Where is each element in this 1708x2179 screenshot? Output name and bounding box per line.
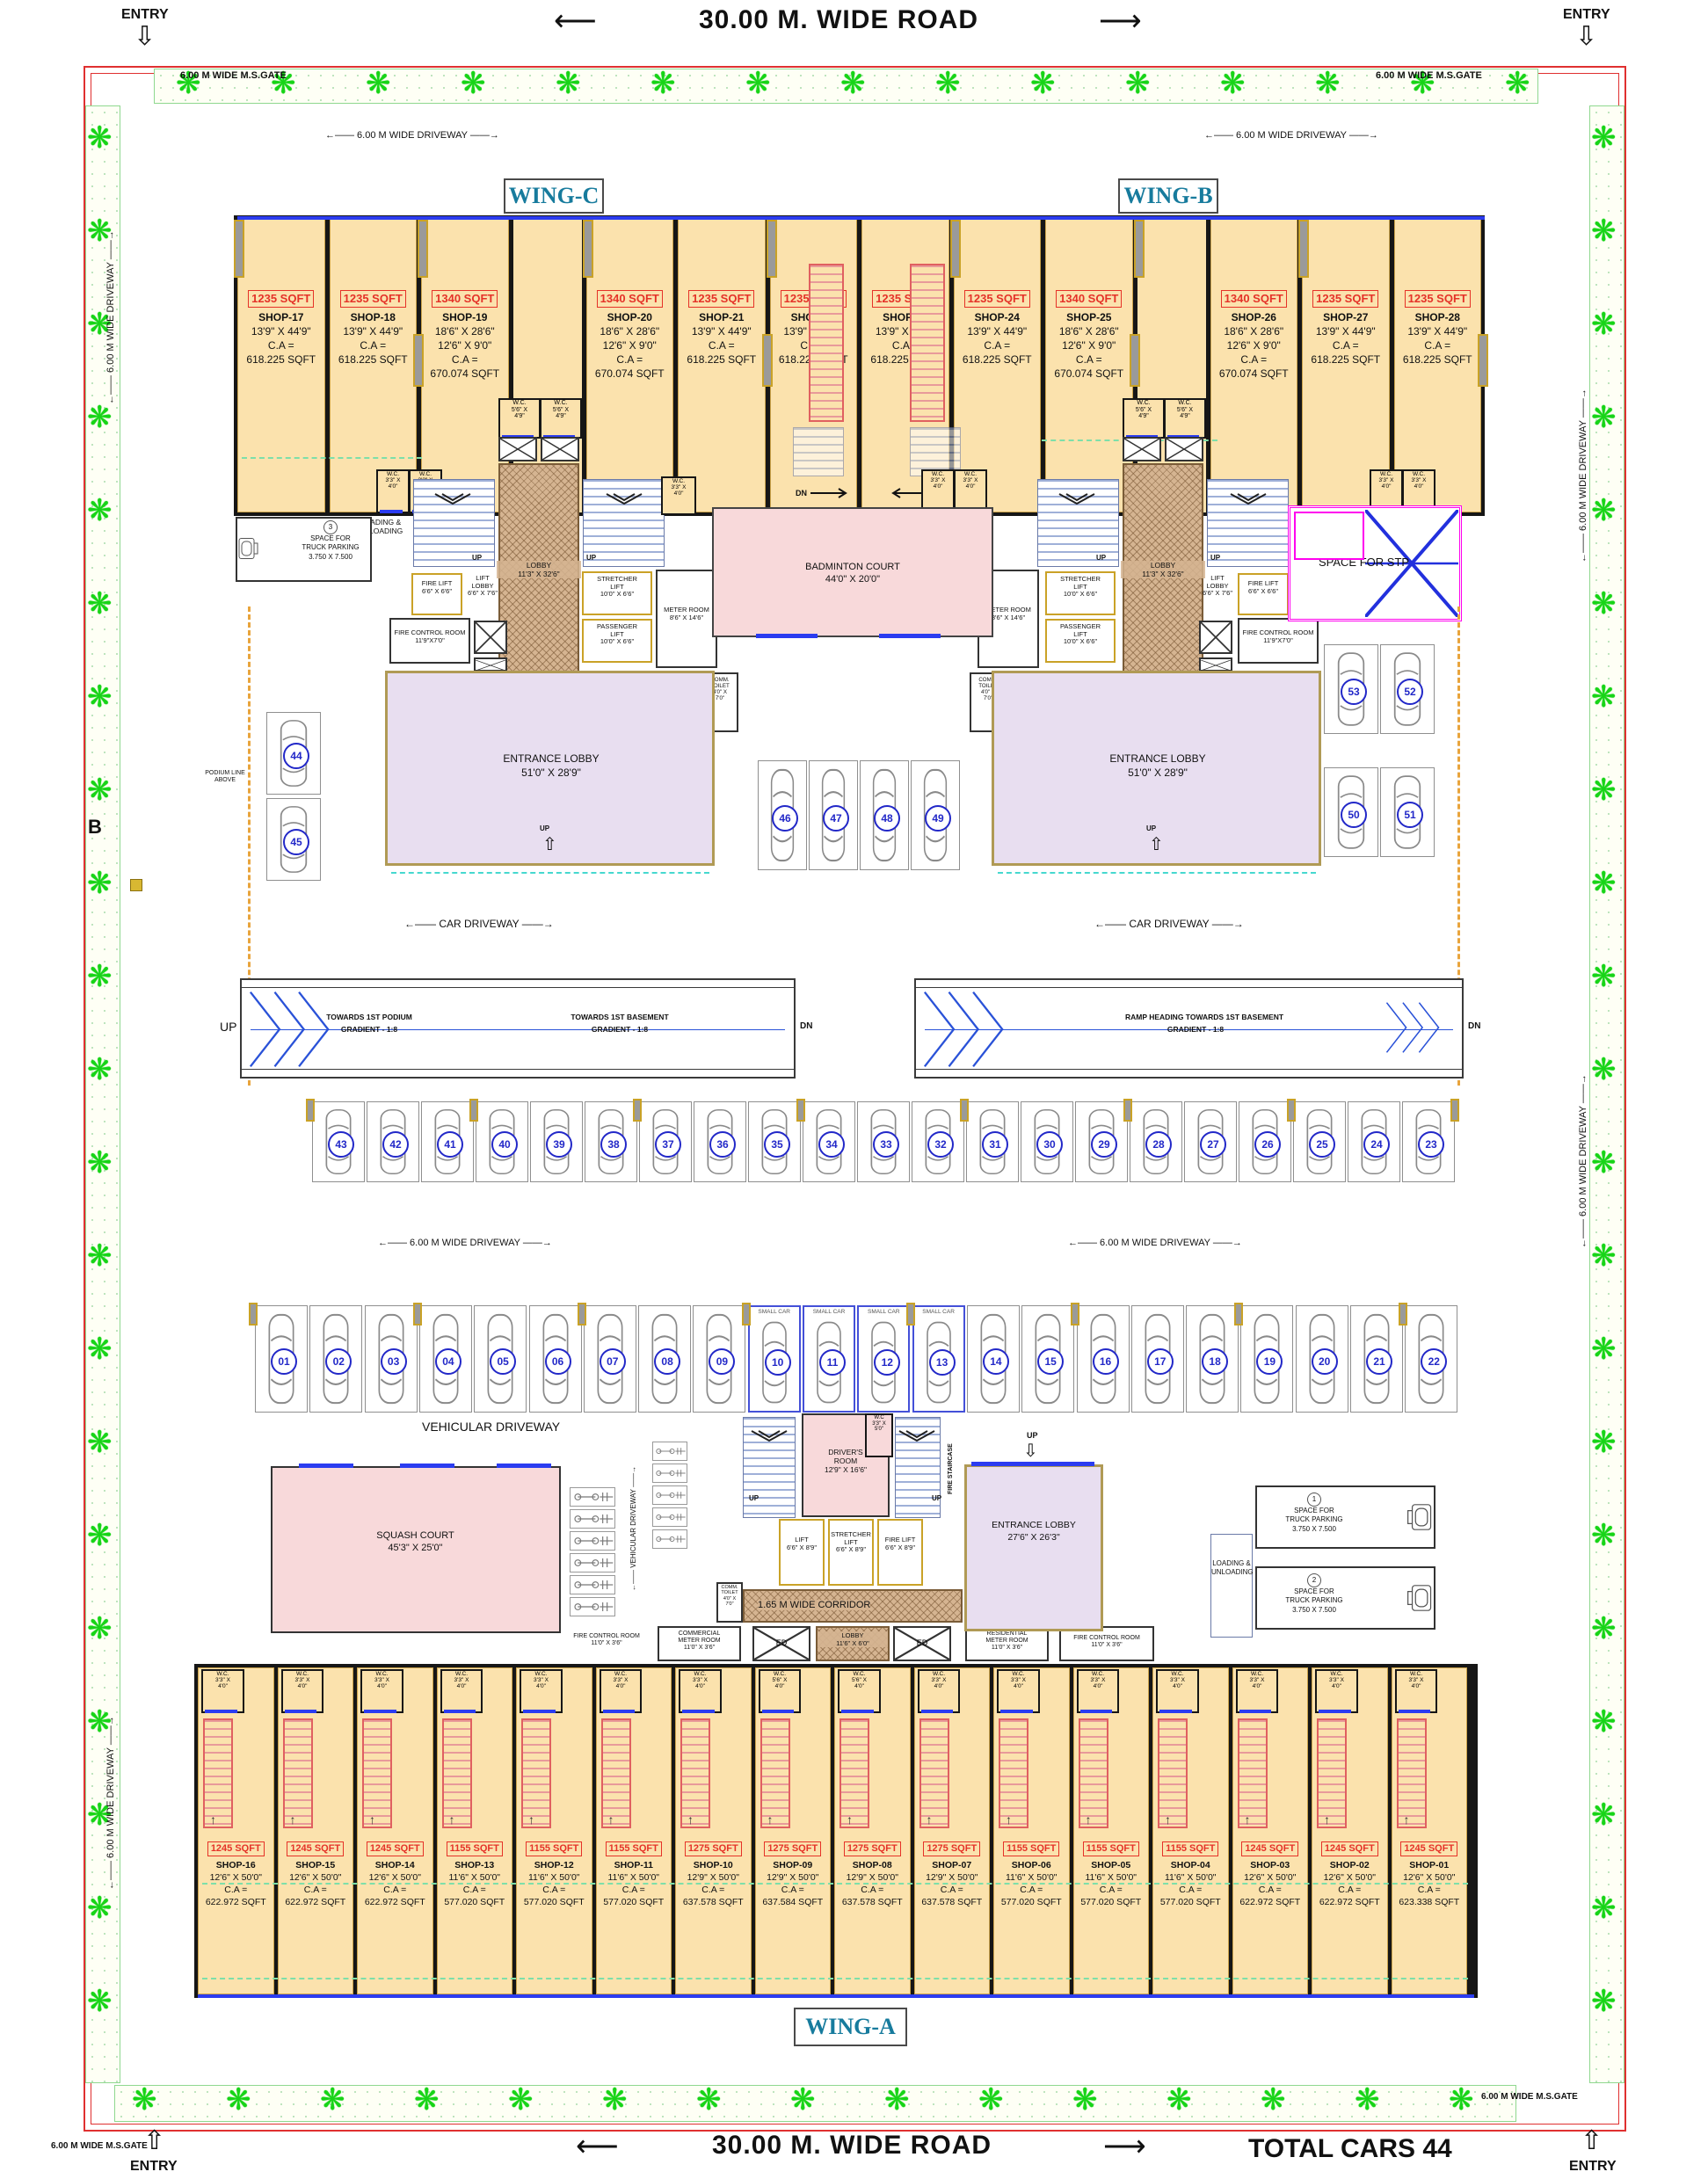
wc-label-line: 4'9" <box>1166 413 1204 420</box>
tree-icon: ❋ <box>1167 2085 1192 2115</box>
squash-court-label-line: 45'3" X 25'0" <box>343 1542 488 1554</box>
up-arrow-icon: ↑ <box>1006 1812 1012 1827</box>
tree-icon: ❋ <box>1030 69 1056 98</box>
shop-ca-value: 577.020 SQFT <box>1072 1896 1152 1908</box>
parking-stall: 35 <box>748 1101 801 1182</box>
parking-stall: 22 <box>1405 1305 1457 1413</box>
shop-ca-value: 618.225 SQFT <box>237 352 325 367</box>
up-arrow-icon: ↑ <box>608 1812 614 1827</box>
tree-icon: ❋ <box>132 2085 157 2115</box>
shop-info: 1340 SQFTSHOP-1918'6" X 28'6"12'6" X 9'0… <box>421 290 509 381</box>
loading-unloading-label-line: UNLOADING <box>1211 1568 1252 1577</box>
wc-label-line: 3'3" X <box>1371 477 1401 483</box>
entry-label-bottom-left: ENTRY <box>130 2159 178 2175</box>
shop-ca: C.A = <box>1310 1884 1390 1896</box>
shop-ca-value: 618.225 SQFT <box>678 352 766 367</box>
lift-lobby-label: LIFTLOBBY6'6" X 7'6" <box>1199 575 1236 598</box>
parking-stall: 31 <box>966 1101 1019 1182</box>
shop-info: 1245 SQFTSHOP-0312'6" X 50'0"C.A =622.97… <box>1231 1841 1311 1909</box>
parking-stall: 29 <box>1075 1101 1128 1182</box>
shop-area-badge: 1340 SQFT <box>432 290 498 308</box>
parking-stall: 17 <box>1131 1305 1184 1413</box>
wc-door-window <box>444 1710 476 1713</box>
tree-icon: ❋ <box>87 1334 113 1364</box>
up-arrow-icon: ↑ <box>449 1812 455 1827</box>
shop-dims: 18'6" X 28'6" <box>586 324 674 338</box>
wc-room: W.C.3'3" X4'0" <box>201 1669 244 1713</box>
wc-door-window <box>1239 1710 1272 1713</box>
up-arrow-icon: ↑ <box>927 1812 933 1827</box>
column-marker <box>1134 220 1145 278</box>
shop-info: 1340 SQFTSHOP-2518'6" X 28'6"12'6" X 9'0… <box>1045 290 1133 381</box>
parking-number: 17 <box>1147 1348 1174 1375</box>
wc-room: W.C.5'6" X4'9" <box>498 398 541 439</box>
corridor-label: 1.65 M WIDE CORRIDOR <box>758 1600 870 1610</box>
ramp-label: TOWARDS 1ST BASEMENT <box>563 1013 677 1021</box>
parking-stall: 04 <box>419 1305 472 1413</box>
shop-ca: C.A = <box>594 1884 674 1896</box>
column-marker <box>1399 1303 1407 1326</box>
shop-dims: 13'9" X 44'9" <box>1302 324 1390 338</box>
stair-block-red <box>839 1718 869 1828</box>
parking-number: 46 <box>772 805 798 832</box>
truck-parking-line: 3.750 X 7.500 <box>1266 1525 1363 1534</box>
tree-icon: ❋ <box>1591 1427 1617 1457</box>
parking-number: 11 <box>819 1349 846 1376</box>
residential-meter-room-label: RESIDENTIALMETER ROOM11'0" X 3'6" <box>967 1631 1047 1652</box>
parking-number: 08 <box>654 1348 680 1375</box>
shop-area-badge: 1235 SQFT <box>1405 290 1471 308</box>
column-marker <box>1234 1303 1243 1326</box>
shop-name: SHOP-11 <box>594 1859 674 1871</box>
shop-info: 1155 SQFTSHOP-0611'6" X 50'0"C.A =577.02… <box>992 1841 1072 1909</box>
b-marker: B <box>88 816 102 839</box>
up-arrow-icon: ↑ <box>767 1812 774 1827</box>
shop-info: 1275 SQFTSHOP-0712'9" X 50'0"C.A =637.57… <box>912 1841 992 1909</box>
lift-shaft <box>1199 621 1232 654</box>
stair-block-red <box>1079 1718 1108 1828</box>
parking-stall: 24 <box>1348 1101 1400 1182</box>
residential-meter-room-label-line: METER ROOM <box>967 1638 1047 1645</box>
stair-block-red <box>362 1718 392 1828</box>
column-marker <box>413 1303 422 1326</box>
tree-icon: ❋ <box>1591 682 1617 712</box>
wc-room: W.C.3'3" X4'0" <box>918 1669 961 1713</box>
tree-icon: ❋ <box>1591 1241 1617 1271</box>
tree-icon: ❋ <box>1591 309 1617 339</box>
tree-icon: ❋ <box>790 2085 816 2115</box>
truck-parking-line: SPACE FOR <box>1266 1507 1363 1515</box>
lift-lobby-label: LIFTLOBBY6'6" X 7'6" <box>464 575 501 598</box>
wc-label-line: W.C. <box>1124 400 1163 407</box>
shop-dims: 13'9" X 44'9" <box>1394 324 1482 338</box>
parking-stall-small-car: SMALL CAR11 <box>803 1305 855 1413</box>
parking-stall: 36 <box>694 1101 746 1182</box>
passenger-lift-label: PASSENGERLIFT10'0" X 6'6" <box>1047 623 1114 646</box>
wc-label-line: 3'3" X <box>1397 1677 1436 1683</box>
shop-info: 1235 SQFTSHOP-1713'9" X 44'9"C.A =618.22… <box>237 290 325 367</box>
shop-info: 1155 SQFTSHOP-1311'6" X 50'0"C.A =577.02… <box>435 1841 515 1909</box>
tree-icon: ❋ <box>87 1614 113 1644</box>
parking-number: 24 <box>1363 1131 1390 1158</box>
truck-parking-line: TRUCK PARKING <box>1266 1596 1363 1605</box>
parking-stall: 34 <box>803 1101 855 1182</box>
wc-room: W.C.3'3" X4'0" <box>1156 1669 1199 1713</box>
parking-stall: 51 <box>1380 767 1435 857</box>
podium-line-label-line: PODIUM LINE <box>198 770 252 777</box>
shop-ca-value: 577.020 SQFT <box>1151 1896 1231 1908</box>
wc-label-line: 4'0" <box>760 1683 800 1689</box>
wc-door-window <box>1319 1710 1351 1713</box>
entrance-lobby-label: ENTRANCE LOBBY51'0" X 28'9" <box>1079 752 1237 780</box>
road-arrow-left-bottom: ⟵ <box>576 2129 619 2164</box>
tree-icon: ❋ <box>87 1241 113 1271</box>
column-marker <box>742 1303 751 1326</box>
tree-icon: ❋ <box>1355 2085 1380 2115</box>
shop-area-badge: 1245 SQFT <box>1400 1841 1457 1856</box>
car-driveway-label: ←—— CAR DRIVEWAY ——→ <box>404 918 554 930</box>
column-marker <box>413 334 424 387</box>
wc-label-line: 4'0" <box>1079 1683 1118 1689</box>
tree-icon: ❋ <box>87 1893 113 1923</box>
fire-lift-label-line: 6'6" X 6'6" <box>1239 588 1287 596</box>
tree-icon: ❋ <box>1591 868 1617 898</box>
shop-dims: 18'6" X 28'6" <box>1210 324 1298 338</box>
wc-label-line: W.C. <box>1371 471 1401 477</box>
road-label-bottom: 30.00 M. WIDE ROAD <box>712 2131 992 2161</box>
bottom-band-window-strip <box>198 1994 1474 1998</box>
lobby-label: LOBBY11'3" X 32'6" <box>497 561 581 578</box>
truck-number: 1 <box>1307 1493 1321 1507</box>
shop-name: SHOP-14 <box>355 1859 435 1871</box>
wc-label-line: 3'3" X <box>680 1677 720 1683</box>
up-label: UP <box>586 554 596 562</box>
shop-dims: 18'6" X 28'6" <box>421 324 509 338</box>
ramp-chevron-icon <box>1385 987 1455 1068</box>
tree-icon: ❋ <box>320 2085 345 2115</box>
tree-icon: ❋ <box>650 69 676 98</box>
truck-parking-line: 3.750 X 7.500 <box>290 553 371 562</box>
parking-number: 07 <box>600 1348 626 1375</box>
shop-area-badge: 1155 SQFT <box>1162 1841 1218 1856</box>
arrow-right-icon <box>809 487 849 499</box>
wc-door-window <box>1000 1710 1033 1713</box>
parking-stall: 27 <box>1184 1101 1237 1182</box>
shop-unit <box>1312 1667 1388 1994</box>
shop-name: SHOP-25 <box>1045 310 1133 324</box>
shop-unit <box>1073 1667 1150 1994</box>
parking-stall: 30 <box>1021 1101 1073 1182</box>
up-arrow-icon: ↑ <box>1245 1812 1251 1827</box>
shop-ca-value: 637.578 SQFT <box>912 1896 992 1908</box>
truck-parking-label: 3SPACE FORTRUCK PARKING3.750 X 7.500 <box>290 520 371 562</box>
column-marker <box>1071 1303 1079 1326</box>
shop-info: 1235 SQFTSHOP-2813'9" X 44'9"C.A =618.22… <box>1394 290 1482 367</box>
shop-area-badge: 1275 SQFT <box>844 1841 901 1856</box>
wc-room: W.C.3'3" X4'0" <box>1395 1669 1438 1713</box>
fire-lift-label: FIRE LIFT6'6" X 6'6" <box>413 580 461 595</box>
shop-area-badge: 1155 SQFT <box>447 1841 503 1856</box>
parking-stall: 28 <box>1130 1101 1182 1182</box>
parking-number: 03 <box>381 1348 407 1375</box>
shop-name: SHOP-04 <box>1151 1859 1231 1871</box>
parking-number: 38 <box>600 1131 627 1158</box>
wc-door-window <box>523 1710 556 1713</box>
lift-lobby-label-line: 6'6" X 7'6" <box>464 590 501 598</box>
shop-ca-value: 577.020 SQFT <box>992 1896 1072 1908</box>
column-marker <box>578 1303 586 1326</box>
ramp-label: GRADIENT - 1:8 <box>1125 1025 1266 1034</box>
stair-arrow-down-icon <box>1228 492 1268 506</box>
parking-stall-small-car: SMALL CAR10 <box>748 1305 801 1413</box>
road-arrow-right: ⟶ <box>1099 4 1142 39</box>
parking-number: 35 <box>764 1131 790 1158</box>
driveway-label: ←—— 6.00 M WIDE DRIVEWAY ——→ <box>1068 1238 1242 1248</box>
wc-label-line: W.C. <box>411 471 440 477</box>
fire-control-room-label-line: 11'0" X 3'6" <box>1061 1642 1152 1649</box>
parking-number: 31 <box>982 1131 1008 1158</box>
stair-block-red <box>1397 1718 1427 1828</box>
parking-number: 16 <box>1093 1348 1119 1375</box>
shop-unit <box>516 1667 592 1994</box>
wc-label-line: 3'3" X <box>601 1677 641 1683</box>
shop-name: SHOP-12 <box>514 1859 594 1871</box>
lift-shaft: ED <box>893 1626 951 1661</box>
lobby-label-line: LOBBY <box>497 561 581 570</box>
wc-label-line: 5'6" X <box>541 407 580 414</box>
ramp-label: TOWARDS 1ST PODIUM <box>316 1013 422 1021</box>
fire-lift-label-line: 6'6" X 6'6" <box>413 588 461 596</box>
shop-name: SHOP-20 <box>586 310 674 324</box>
shop-info: 1155 SQFTSHOP-1211'6" X 50'0"C.A =577.02… <box>514 1841 594 1909</box>
parking-number: 32 <box>927 1131 954 1158</box>
shop-name: SHOP-26 <box>1210 310 1298 324</box>
shop-area-badge: 1275 SQFT <box>923 1841 980 1856</box>
driveway-label-left-vertical: ←—— 6.00 M WIDE DRIVEWAY ——→ <box>105 1716 116 1890</box>
shop-info: 1245 SQFTSHOP-0212'6" X 50'0"C.A =622.97… <box>1310 1841 1390 1909</box>
column-marker <box>960 1099 969 1122</box>
wc-door-window <box>682 1710 715 1713</box>
wc-label-line: 4'9" <box>541 413 580 420</box>
parking-stall: 53 <box>1324 644 1378 734</box>
parking-number: 28 <box>1145 1131 1172 1158</box>
parking-number: 27 <box>1200 1131 1226 1158</box>
parking-number: 51 <box>1397 802 1423 828</box>
up-label: UP <box>1210 554 1220 562</box>
column-marker <box>1450 1099 1459 1122</box>
parking-number: 26 <box>1254 1131 1281 1158</box>
shop-info: 1155 SQFTSHOP-0511'6" X 50'0"C.A =577.02… <box>1072 1841 1152 1909</box>
shop-name: SHOP-01 <box>1390 1859 1470 1871</box>
small-car-label: SMALL CAR <box>859 1309 908 1315</box>
parking-number: 01 <box>271 1348 297 1375</box>
comm-toilet-label: COMM.TOILET4'0" X7'0" <box>716 1585 743 1607</box>
lift-shaft-small <box>474 657 507 672</box>
parking-number: 39 <box>546 1131 572 1158</box>
window-strip <box>971 1462 1094 1466</box>
wc-room: W.C.3'3" X4'0" <box>1315 1669 1358 1713</box>
truck-number: 2 <box>1307 1573 1321 1587</box>
shop-unit <box>993 1667 1070 1994</box>
stp-inner <box>1294 512 1364 560</box>
shop-ca: C.A = <box>237 338 325 352</box>
ed-label: ED <box>754 1638 809 1647</box>
wc-label-line: 5'6" X <box>1166 407 1204 414</box>
teal-dashed-line <box>998 872 1316 874</box>
shop-info: 1235 SQFTSHOP-2713'9" X 44'9"C.A =618.22… <box>1302 290 1390 367</box>
shop-area-badge: 1340 SQFT <box>597 290 663 308</box>
wc-label-line: 4'0" <box>1371 483 1401 490</box>
stair-block-red <box>1317 1718 1347 1828</box>
wc-door-window <box>285 1710 317 1713</box>
shop-unit <box>914 1667 991 1994</box>
wc-label-line: 4'0" <box>1238 1683 1277 1689</box>
parking-number: 34 <box>818 1131 845 1158</box>
passenger-lift-label: PASSENGERLIFT10'0" X 6'6" <box>584 623 650 646</box>
parking-number: 45 <box>283 829 309 855</box>
green-dashed-line <box>202 1883 1468 1885</box>
tree-icon: ❋ <box>1591 1707 1617 1737</box>
fire-control-room-label-line: 11'9"X7'0" <box>391 637 469 645</box>
wc-room: W.C3'3" X5'0" <box>865 1413 893 1457</box>
ramp-label: GRADIENT - 1:8 <box>316 1025 422 1034</box>
wc-door-window <box>921 1710 954 1713</box>
parking-number: 37 <box>655 1131 681 1158</box>
bike-stall <box>570 1487 615 1507</box>
car-driveway-label: ←—— CAR DRIVEWAY ——→ <box>1094 918 1244 930</box>
gate-label-top-left: 6.00 M WIDE M.S.GATE <box>180 70 287 81</box>
tree-icon: ❋ <box>1591 962 1617 991</box>
truck-number: 3 <box>323 520 338 534</box>
shop-area-badge: 1155 SQFT <box>526 1841 582 1856</box>
tree-icon: ❋ <box>556 69 581 98</box>
column-marker <box>249 1303 258 1326</box>
shop-ca-value: 618.225 SQFT <box>954 352 1042 367</box>
shop-ca: C.A = <box>355 1884 435 1896</box>
column-marker <box>469 1099 478 1122</box>
parking-stall: 39 <box>530 1101 583 1182</box>
wc-label-line: W.C. <box>601 1671 641 1677</box>
shop-ca-value: 637.578 SQFT <box>673 1896 753 1908</box>
stair-block-red <box>910 264 945 422</box>
squash-court-label-line: SQUASH COURT <box>343 1529 488 1542</box>
tree-icon: ❋ <box>978 2085 1004 2115</box>
up-arrow-icon: ↑ <box>1165 1812 1171 1827</box>
parking-stall: 46 <box>758 760 807 870</box>
shop-ca: C.A = <box>1045 352 1133 367</box>
entry-label-bottom-right: ENTRY <box>1569 2159 1617 2175</box>
parking-stall-small-car: SMALL CAR13 <box>912 1305 965 1413</box>
shop-info: 1245 SQFTSHOP-1412'6" X 50'0"C.A =622.97… <box>355 1841 435 1909</box>
tree-icon: ❋ <box>1591 216 1617 246</box>
parking-number: 41 <box>437 1131 463 1158</box>
wc-door-window <box>603 1710 636 1713</box>
wc-room: W.C.5'6" X4'0" <box>838 1669 881 1713</box>
wc-room: W.C.3'3" X4'0" <box>661 476 696 515</box>
stair-block-red <box>760 1718 790 1828</box>
truck-parking-line: TRUCK PARKING <box>1266 1515 1363 1524</box>
wc-room: W.C.3'3" X4'0" <box>360 1669 403 1713</box>
site-plan: ❋❋❋❋❋❋❋❋❋❋❋❋❋❋❋❋❋❋❋❋❋❋❋❋❋❋❋❋❋❋❋❋❋❋❋❋❋❋❋❋… <box>0 0 1708 2179</box>
wc-label-line: 4'0" <box>999 1683 1038 1689</box>
ramp-dn-label: DN <box>1468 1021 1480 1031</box>
tree-icon: ❋ <box>87 1055 113 1085</box>
wc-label-line: W.C. <box>923 471 953 477</box>
wc-label-line: 4'0" <box>1404 483 1434 490</box>
up-arrow-icon: ↑ <box>369 1812 375 1827</box>
parking-stall: 05 <box>474 1305 527 1413</box>
tree-icon: ❋ <box>87 962 113 991</box>
parking-stall: 33 <box>857 1101 910 1182</box>
window-strip <box>299 1464 353 1468</box>
shop-ca-value: 618.225 SQFT <box>1302 352 1390 367</box>
wc-door-window <box>1159 1710 1192 1713</box>
truck-icon <box>1368 1489 1433 1545</box>
shop-dims: 12'6" X 9'0" <box>1210 338 1298 352</box>
shop-ca-value: 670.074 SQFT <box>421 367 509 381</box>
shop-ca: C.A = <box>832 1884 912 1896</box>
badminton-court-label-line: 44'0" X 20'0" <box>782 573 923 585</box>
stretcher-lift-label: STRETCHERLIFT10'0" X 6'6" <box>1047 576 1114 599</box>
wc-label-line: 3'3" X <box>362 1677 402 1683</box>
parking-stall: 40 <box>476 1101 528 1182</box>
shop-ca-value: 670.074 SQFT <box>1210 367 1298 381</box>
shop-info: 1275 SQFTSHOP-0812'9" X 50'0"C.A =637.57… <box>832 1841 912 1909</box>
wc-label-line: W.C. <box>500 400 539 407</box>
shop-unit <box>596 1667 672 1994</box>
wc-label-line: W.C. <box>541 400 580 407</box>
shop-unit <box>437 1667 513 1994</box>
shop-name: SHOP-27 <box>1302 310 1390 324</box>
shop-unit <box>1152 1667 1229 1994</box>
shop-area-badge: 1235 SQFT <box>964 290 1030 308</box>
gate-label-bottom-left: 6.00 M WIDE M.S.GATE <box>51 2141 148 2151</box>
loading-unloading-label-line: LOADING & <box>1211 1559 1252 1568</box>
parking-stall: 49 <box>911 760 960 870</box>
shop-name: SHOP-18 <box>330 310 418 324</box>
stair-block-red <box>809 264 844 422</box>
window-strip <box>400 1464 454 1468</box>
up-label: UP <box>540 824 549 832</box>
tree-icon: ❋ <box>1591 1521 1617 1551</box>
lift-label: LIFT6'6" X 8'9" <box>780 1536 824 1551</box>
shop-info: 1275 SQFTSHOP-0912'9" X 50'0"C.A =637.58… <box>753 1841 833 1909</box>
tree-icon: ❋ <box>226 2085 251 2115</box>
shop-dims: 13'9" X 44'9" <box>954 324 1042 338</box>
shop-ca: C.A = <box>673 1884 753 1896</box>
driveway-label-right-vertical: ←—— 6.00 M WIDE DRIVEWAY ——→ <box>1578 389 1588 563</box>
column-marker <box>633 1099 642 1122</box>
up-arrow-icon: ↑ <box>290 1812 296 1827</box>
parking-number: 33 <box>873 1131 899 1158</box>
vehicular-driveway-label: VEHICULAR DRIVEWAY <box>422 1420 560 1434</box>
stair-arrow-down-icon <box>1057 492 1097 506</box>
parking-stall: 45 <box>266 798 321 881</box>
wc-room: W.C.5'6" X4'9" <box>1164 398 1206 439</box>
wc-label-line: 4'0" <box>442 1683 482 1689</box>
wc-label-line: 3'3" X <box>919 1677 959 1683</box>
wc-label-line: 3'3" X <box>999 1677 1038 1683</box>
shop-dims: 18'6" X 28'6" <box>1045 324 1133 338</box>
column-marker <box>762 334 773 387</box>
fire-lift-room <box>877 1519 923 1586</box>
tree-icon: ❋ <box>87 682 113 712</box>
parking-stall: 23 <box>1402 1101 1455 1182</box>
squash-court-label: SQUASH COURT45'3" X 25'0" <box>343 1529 488 1555</box>
shop-unit <box>278 1667 354 1994</box>
parking-number: 29 <box>1091 1131 1117 1158</box>
tree-icon: ❋ <box>745 69 771 98</box>
